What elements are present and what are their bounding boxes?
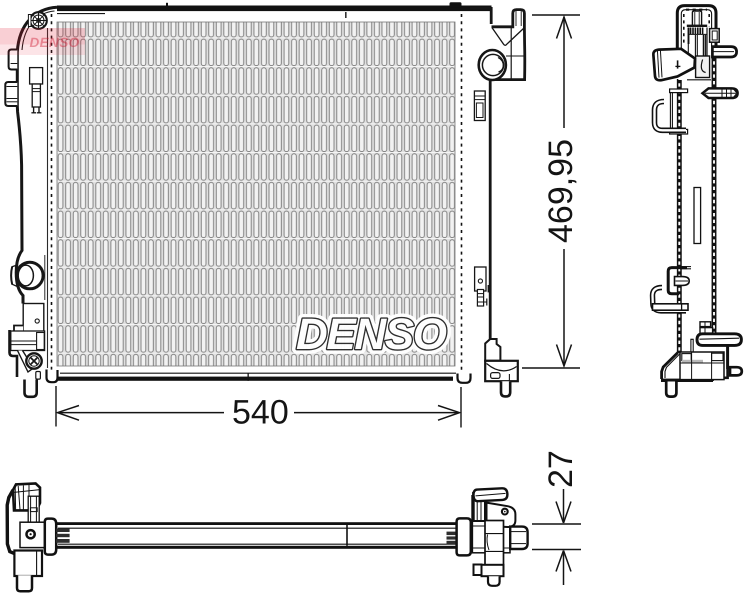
svg-text:27: 27 — [542, 450, 580, 488]
svg-text:DENSO: DENSO — [296, 310, 447, 359]
svg-text:469,95: 469,95 — [542, 139, 580, 243]
svg-text:DENSO: DENSO — [30, 35, 80, 50]
svg-text:540: 540 — [232, 394, 289, 432]
